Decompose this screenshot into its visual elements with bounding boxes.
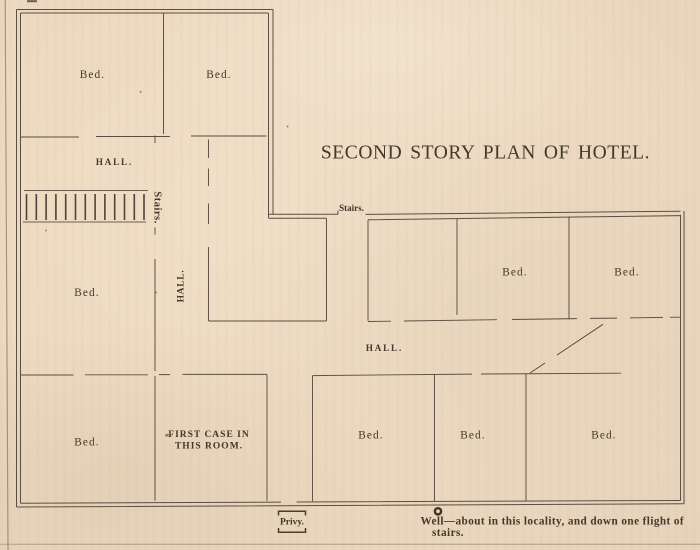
svg-text:HALL.: HALL. (96, 157, 133, 167)
svg-text:HALL.: HALL. (366, 343, 403, 353)
svg-text:Bed.: Bed. (74, 287, 99, 299)
svg-text:Bed.: Bed. (80, 69, 105, 81)
svg-text:FIRST CASE IN: FIRST CASE IN (168, 430, 249, 440)
svg-text:HALL.: HALL. (177, 270, 187, 303)
svg-text:Bed.: Bed. (614, 267, 639, 279)
svg-text:THIS ROOM.: THIS ROOM. (175, 441, 243, 451)
svg-text:Privy.: Privy. (280, 518, 304, 528)
svg-text:Bed.: Bed. (358, 430, 383, 442)
svg-text:Bed.: Bed. (460, 430, 485, 442)
svg-text:Stairs.: Stairs. (151, 191, 163, 224)
svg-text:*: * (165, 432, 170, 442)
svg-text:Well—about in this locality, a: Well—about in this locality, and down on… (421, 515, 685, 527)
svg-text:Bed.: Bed. (74, 437, 99, 449)
svg-text:Bed.: Bed. (591, 430, 616, 442)
svg-text:SECOND STORY PLAN OF HOTEL.: SECOND STORY PLAN OF HOTEL. (321, 143, 650, 164)
svg-text:Bed.: Bed. (206, 69, 231, 81)
svg-text:Bed.: Bed. (502, 267, 527, 279)
svg-text:stairs.: stairs. (432, 527, 464, 539)
svg-text:Stairs.: Stairs. (339, 203, 364, 213)
